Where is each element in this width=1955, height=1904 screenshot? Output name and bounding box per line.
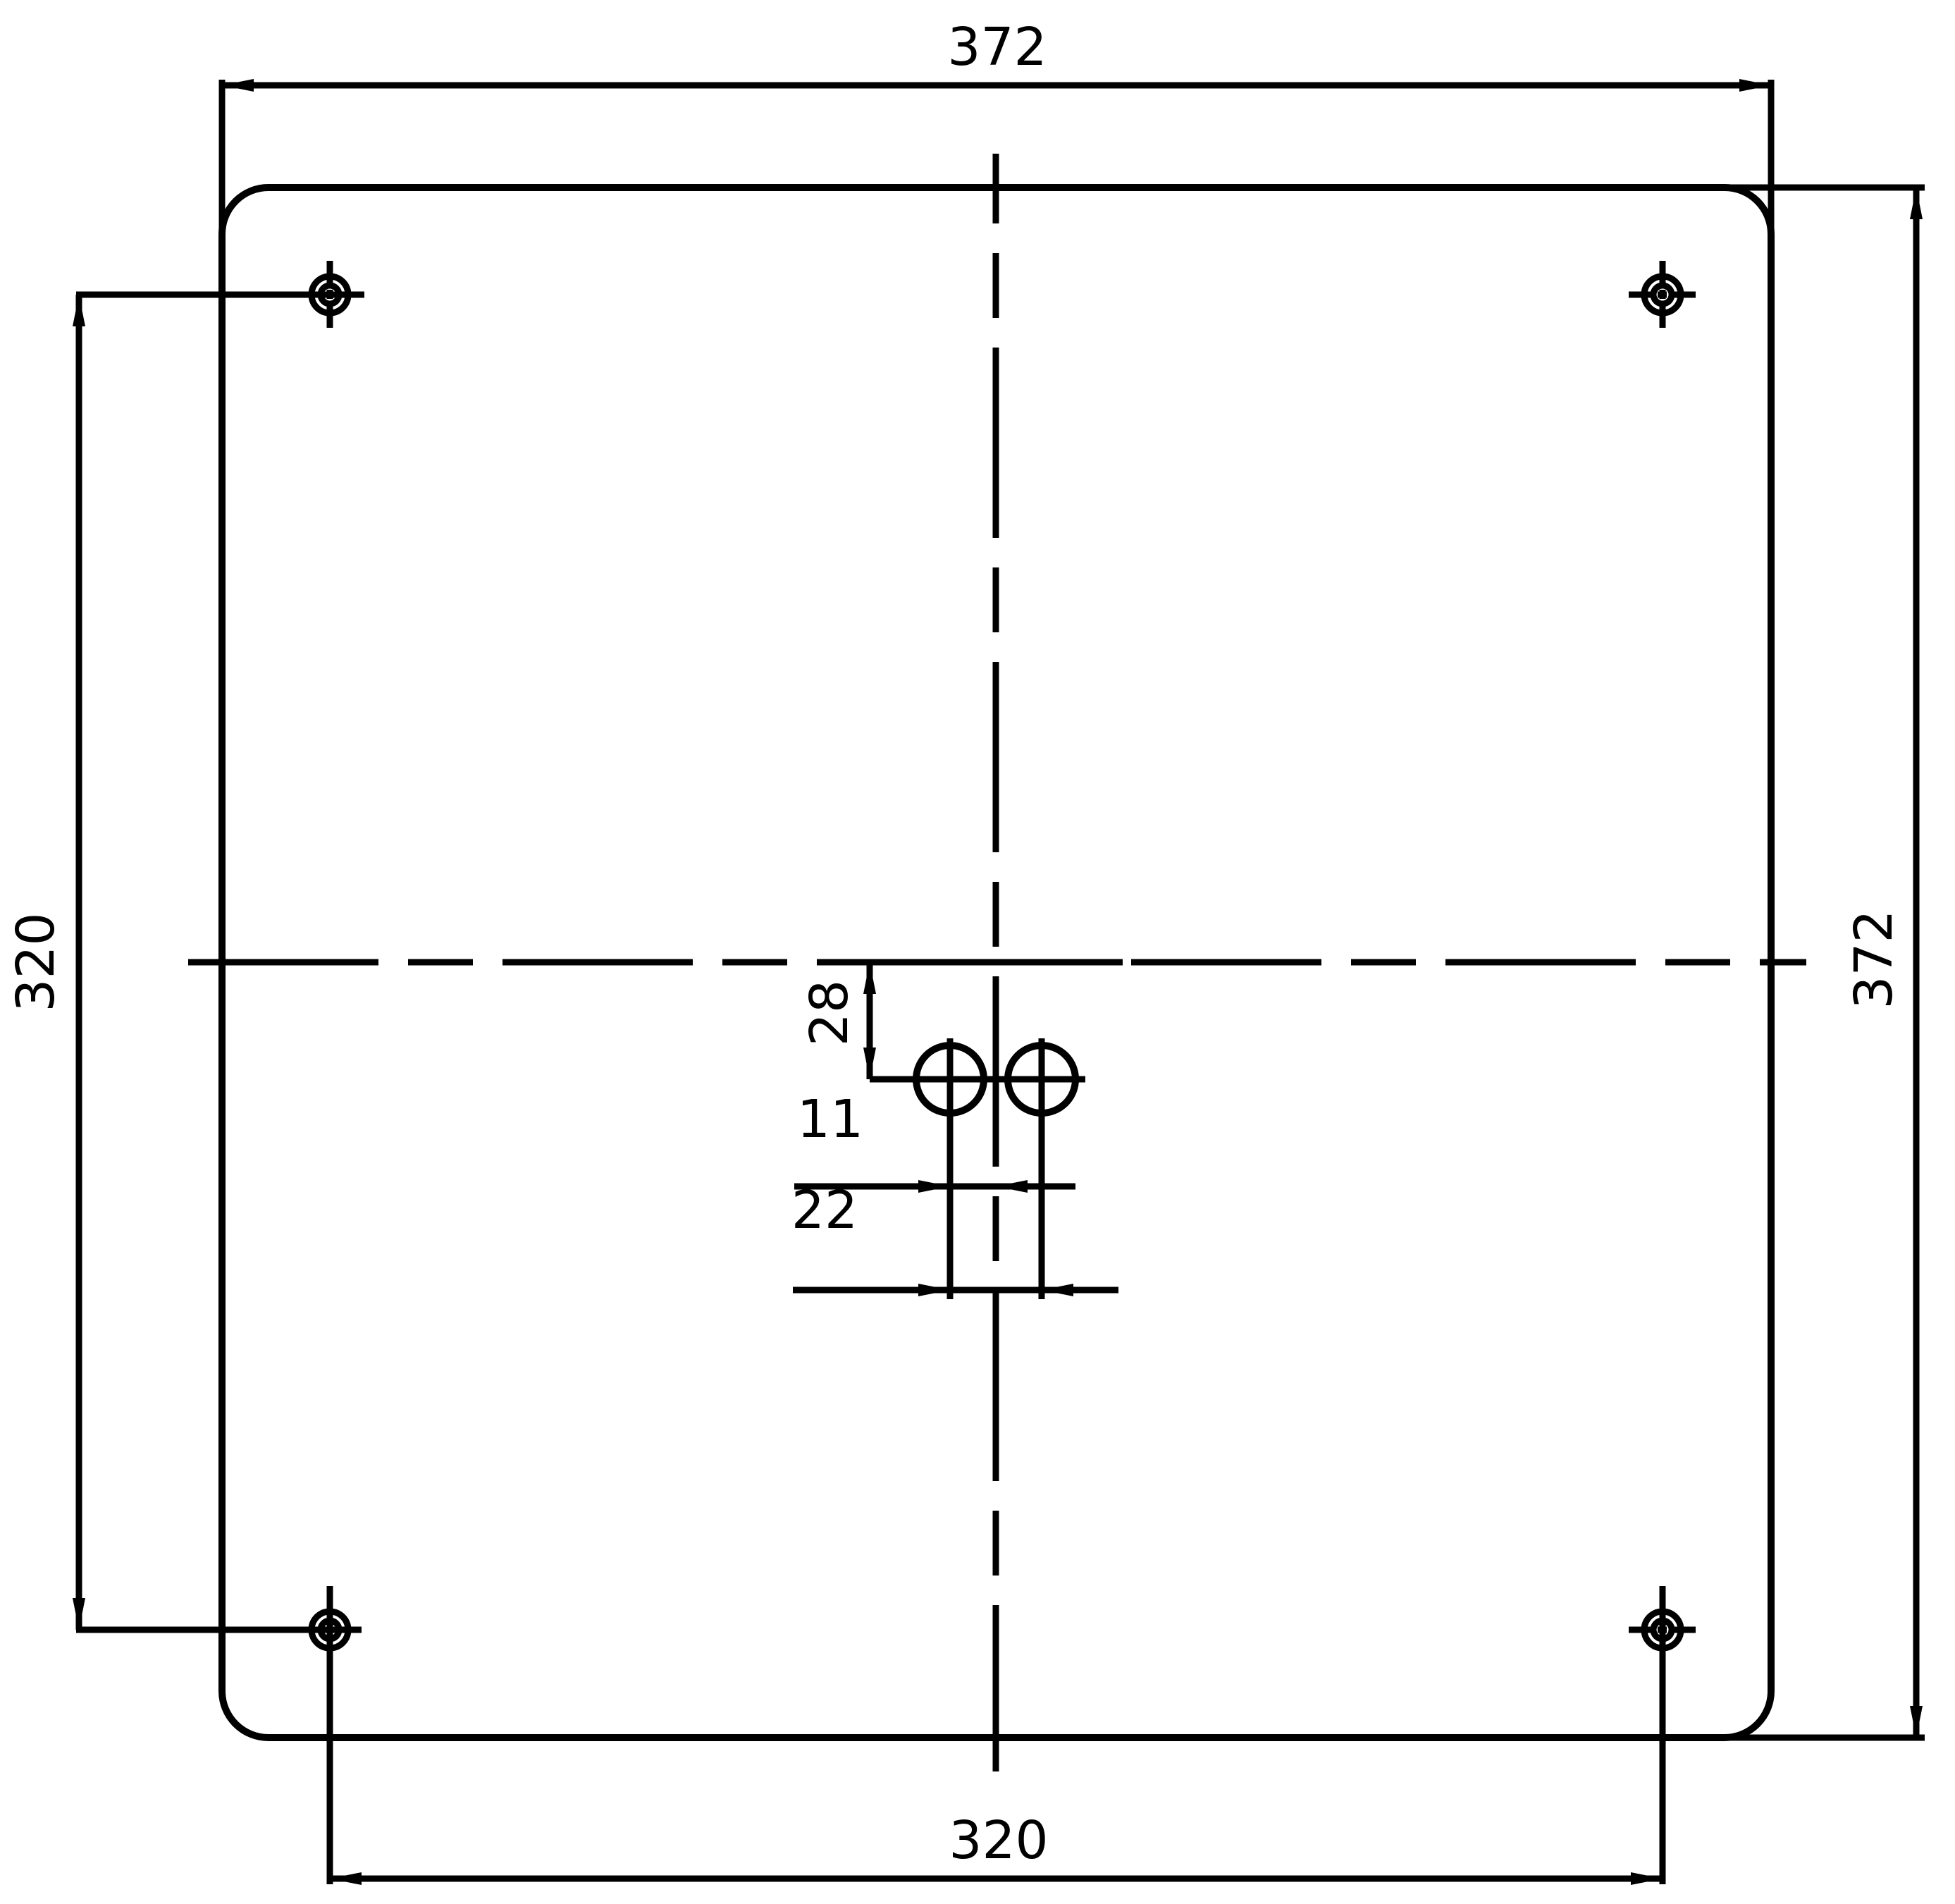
arrowhead-down-icon	[863, 1048, 876, 1079]
arrowhead-right-icon	[918, 1284, 950, 1296]
corner-hole-marker-top-right	[1629, 261, 1696, 328]
arrowhead-left-icon	[1042, 1284, 1073, 1296]
dimension-value-corner-hole-spacing-horizontal: 320	[949, 1810, 1048, 1871]
dimension-value-overall-height: 372	[1844, 909, 1904, 1009]
dimension-value-overall-width: 372	[947, 17, 1047, 78]
arrowhead-up-icon	[73, 295, 85, 326]
arrowhead-right-icon	[918, 1180, 950, 1193]
arrowhead-up-icon	[863, 962, 876, 994]
dimension-value-hole-spacing: 22	[791, 1180, 858, 1241]
arrowhead-right-icon	[1739, 79, 1771, 92]
arrowhead-left-icon	[330, 1872, 362, 1885]
dimension-hole-to-centerline: 11	[794, 1089, 1075, 1193]
center-holes	[870, 1038, 1085, 1299]
arrowhead-down-icon	[1910, 1706, 1923, 1738]
dimension-value-center-hole-offset: 28	[799, 980, 860, 1046]
arrowhead-up-icon	[1910, 188, 1923, 219]
dimension-hole-spacing: 22	[791, 1180, 1118, 1296]
arrowhead-left-icon	[996, 1180, 1028, 1193]
dimension-overall-height: 372	[1725, 188, 1925, 1738]
dimension-value-hole-to-centerline: 11	[797, 1089, 863, 1150]
dimension-value-corner-hole-spacing-vertical: 320	[6, 912, 66, 1012]
technical-drawing-canvas: 372 372 320 320 28	[0, 0, 1955, 1904]
drawing-sheet: 372 372 320 320 28	[0, 0, 1955, 1904]
arrowhead-left-icon	[222, 79, 254, 92]
arrowhead-right-icon	[1631, 1872, 1663, 1885]
arrowhead-down-icon	[73, 1598, 85, 1630]
